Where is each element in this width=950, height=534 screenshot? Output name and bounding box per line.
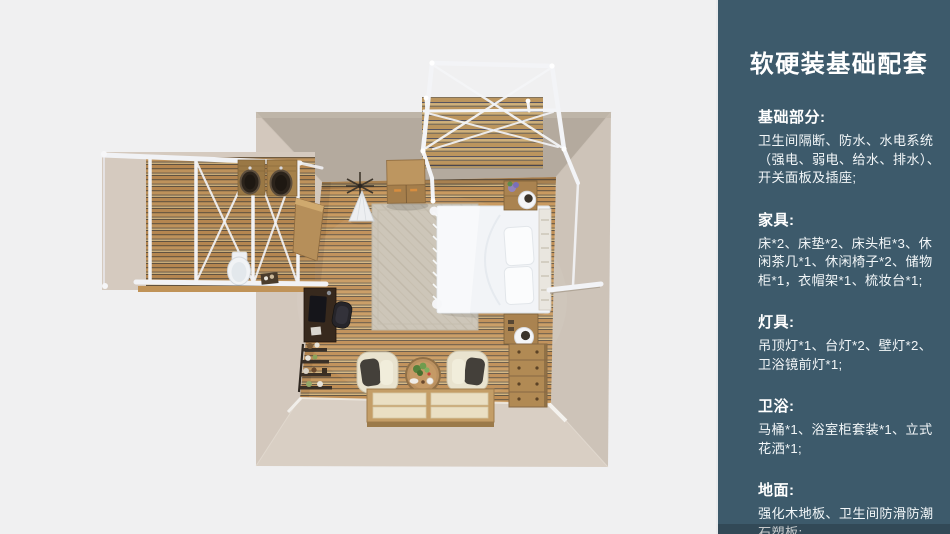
section-line: 柜*1，衣帽架*1、梳妆台*1;: [758, 272, 938, 291]
tea-table: [406, 358, 440, 393]
tatami-platform: [367, 389, 494, 427]
section-line: 马桶*1、浴室柜套装*1、立式: [758, 421, 938, 440]
slide: 软硬装基础配套 基础部分: 卫生间隔断、防水、水电系统 （强电、弱电、给水、排水…: [0, 0, 950, 534]
wardrobe: [386, 160, 429, 211]
deck: [422, 97, 543, 168]
headboard: [539, 209, 551, 310]
section-line: 强化木地板、卫生间防滑防潮: [758, 505, 938, 524]
section-line: 石塑板;: [758, 524, 938, 534]
vanity-basins: [238, 160, 297, 196]
section-furniture: 家具: 床*2、床垫*2、床头柜*3、休 闲茶几*1、休闲椅子*2、储物 柜*1…: [758, 209, 938, 291]
section-heading: 家具:: [758, 209, 938, 230]
section-line: 吊顶灯*1、台灯*2、壁灯*2、: [758, 337, 938, 356]
desk: [304, 288, 336, 342]
section-flooring: 地面: 强化木地板、卫生间防滑防潮 石塑板;: [758, 479, 938, 534]
pillow: [504, 226, 535, 266]
armchair-right: [444, 351, 490, 392]
laptop: [308, 295, 327, 322]
section-line: 闲茶几*1、休闲椅子*2、储物: [758, 253, 938, 272]
section-heading: 卫浴:: [758, 395, 938, 416]
section-line: 床*2、床垫*2、床头柜*3、休: [758, 235, 938, 254]
nightstand-top: [504, 181, 537, 210]
section-heading: 基础部分:: [758, 106, 938, 127]
section-bathroom: 卫浴: 马桶*1、浴室柜套装*1、立式 花洒*1;: [758, 395, 938, 458]
floorplan-panel: [0, 0, 718, 534]
nightstand-bottom: [504, 314, 538, 347]
dresser: [509, 344, 547, 407]
floorplan-render: [0, 0, 718, 534]
section-heading: 地面:: [758, 479, 938, 500]
sidebar-title: 软硬装基础配套: [738, 44, 940, 79]
section-line: 卫浴镜前灯*1;: [758, 356, 938, 375]
section-line: 卫生间隔断、防水、水电系统: [758, 132, 938, 151]
pillow: [504, 266, 534, 304]
section-heading: 灯具:: [758, 311, 938, 332]
section-line: 开关面板及插座;: [758, 169, 938, 188]
toiletry-stand: [261, 272, 279, 285]
sidebar: 软硬装基础配套 基础部分: 卫生间隔断、防水、水电系统 （强电、弱电、给水、排水…: [716, 0, 950, 534]
section-basics: 基础部分: 卫生间隔断、防水、水电系统 （强电、弱电、给水、排水）、 开关面板及…: [758, 106, 938, 188]
section-line: 花洒*1;: [758, 440, 938, 459]
section-line: （强电、弱电、给水、排水）、: [758, 151, 938, 170]
section-lighting: 灯具: 吊顶灯*1、台灯*2、壁灯*2、 卫浴镜前灯*1;: [758, 311, 938, 374]
bathroom: [101, 151, 326, 292]
threshold: [138, 286, 325, 292]
armchair-left: [354, 352, 400, 393]
bed: [430, 206, 552, 318]
